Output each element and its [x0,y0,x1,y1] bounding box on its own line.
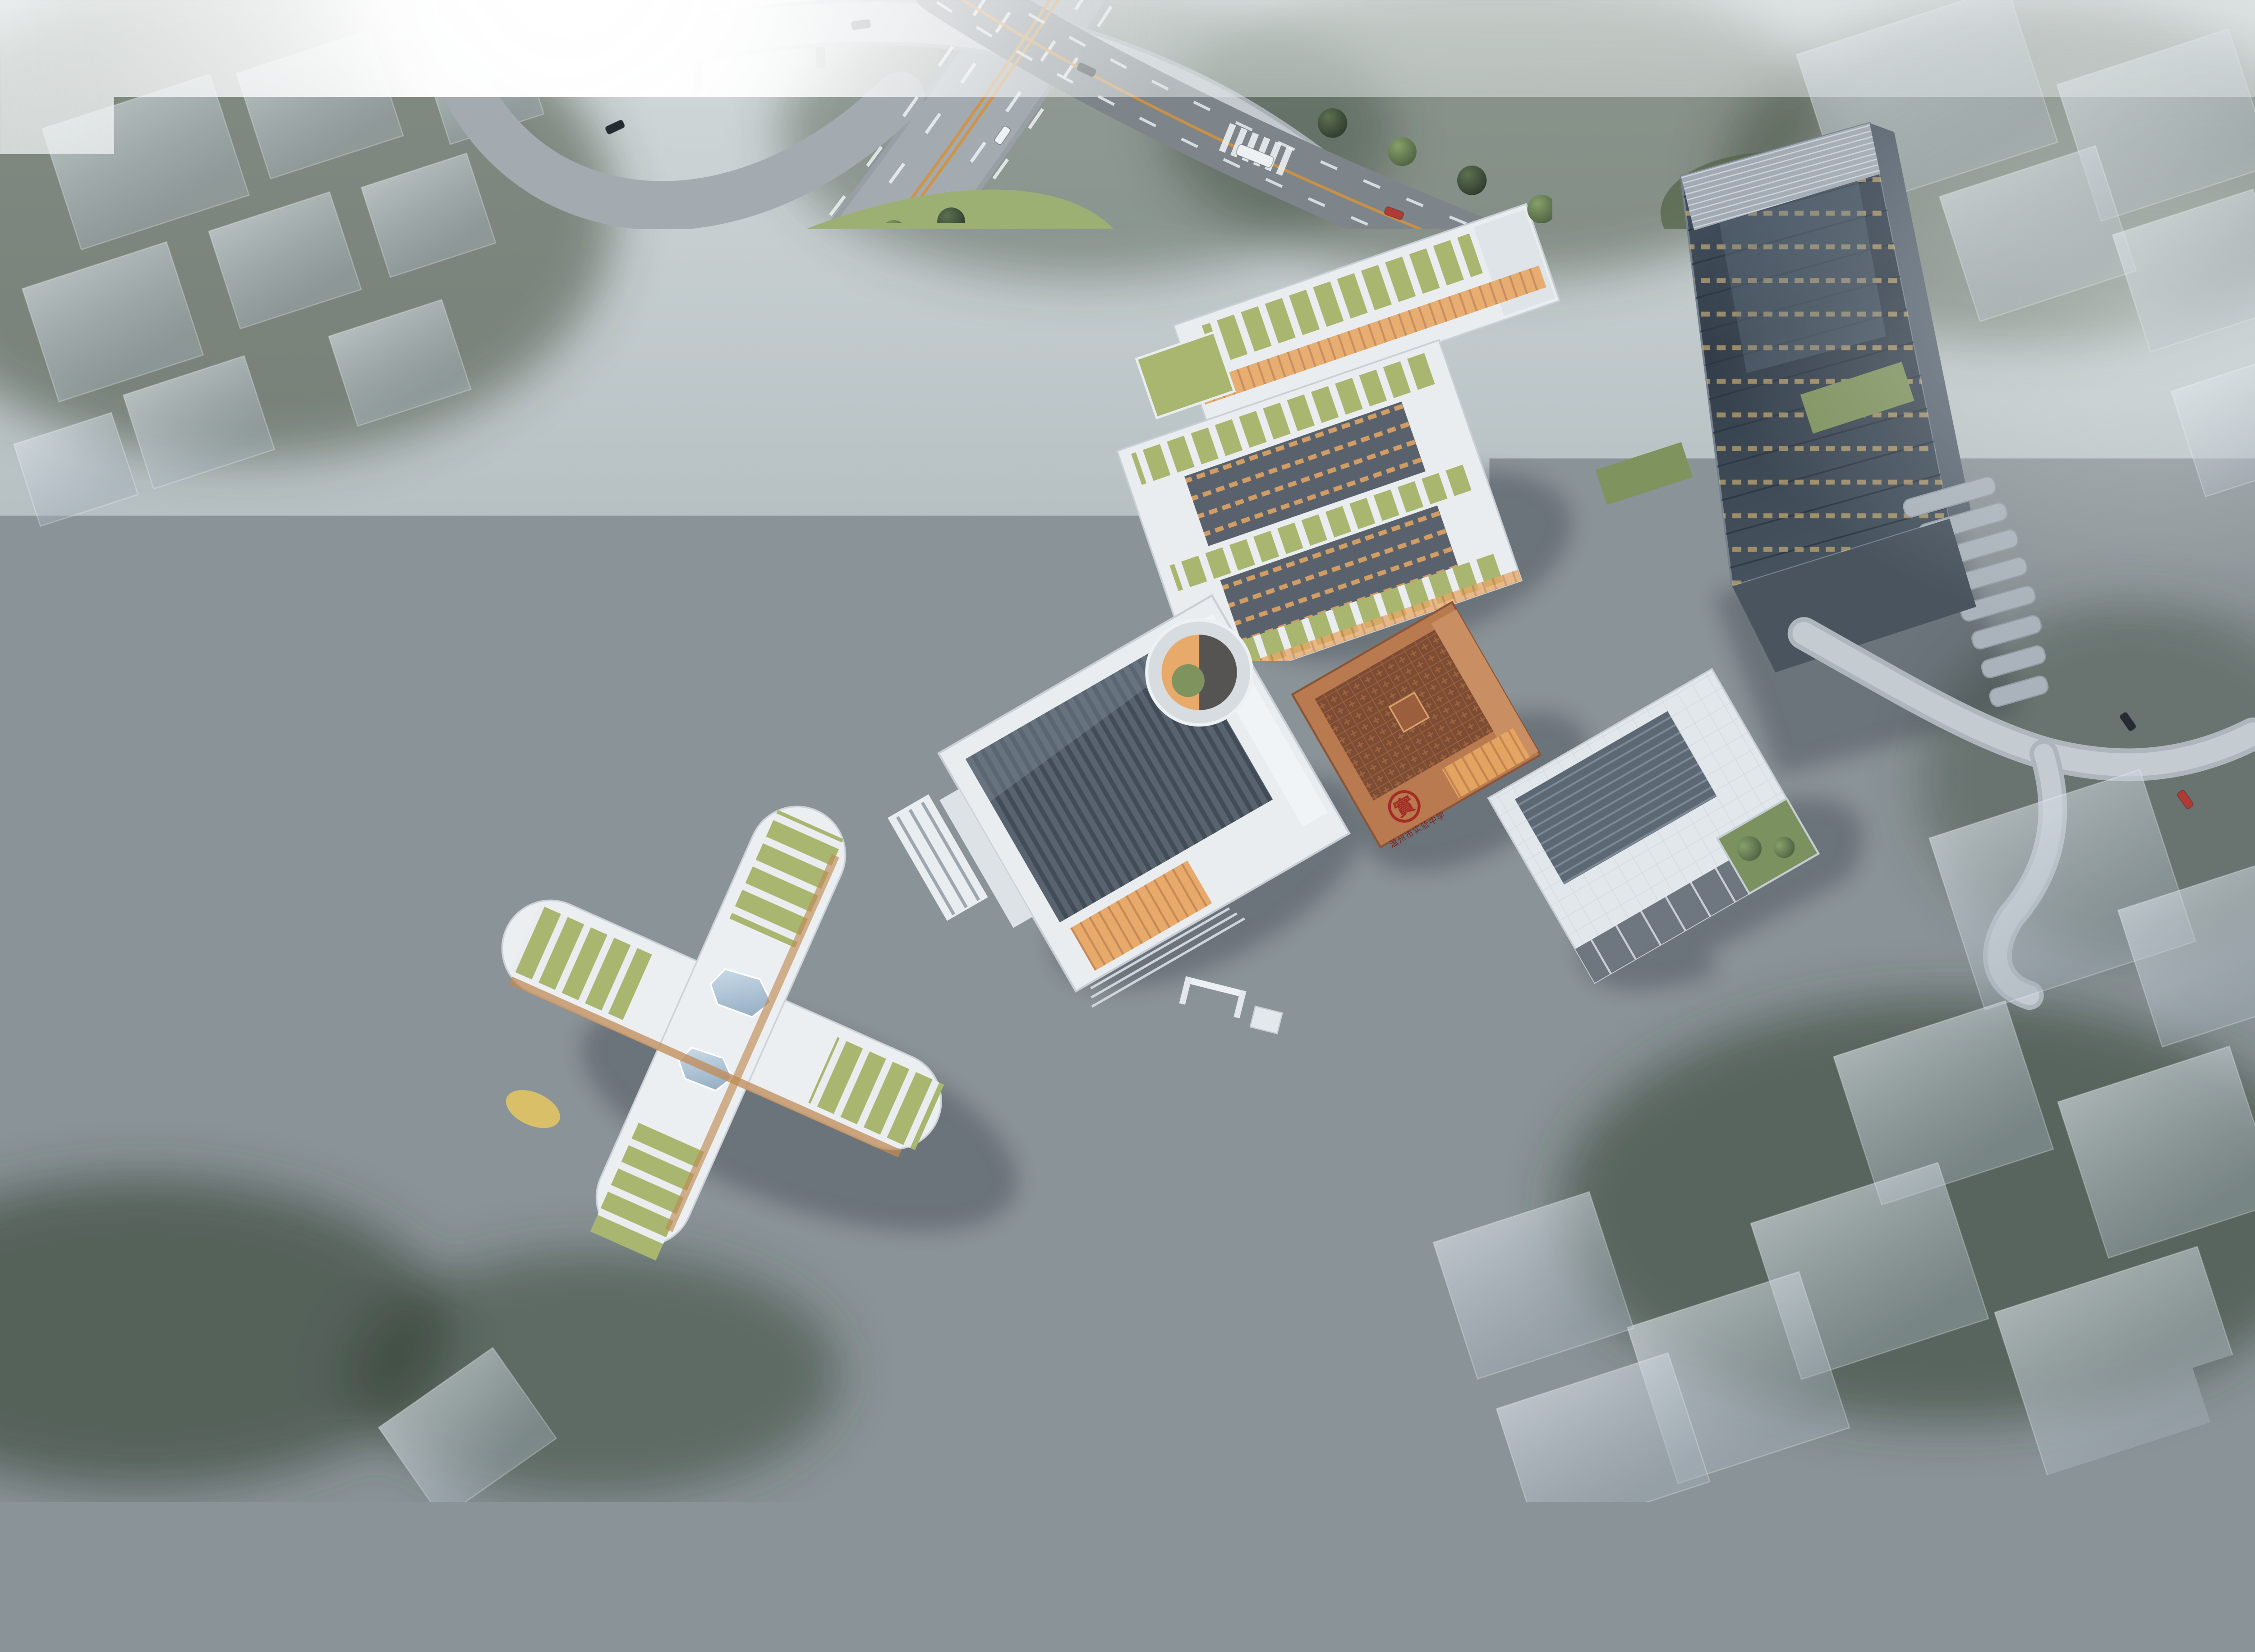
aerial-rendering-scene: Aerial architectural rendering — school … [0,0,2255,1502]
atmosphere [0,0,2255,1502]
fog-patch-mid-right [1476,656,2050,1066]
